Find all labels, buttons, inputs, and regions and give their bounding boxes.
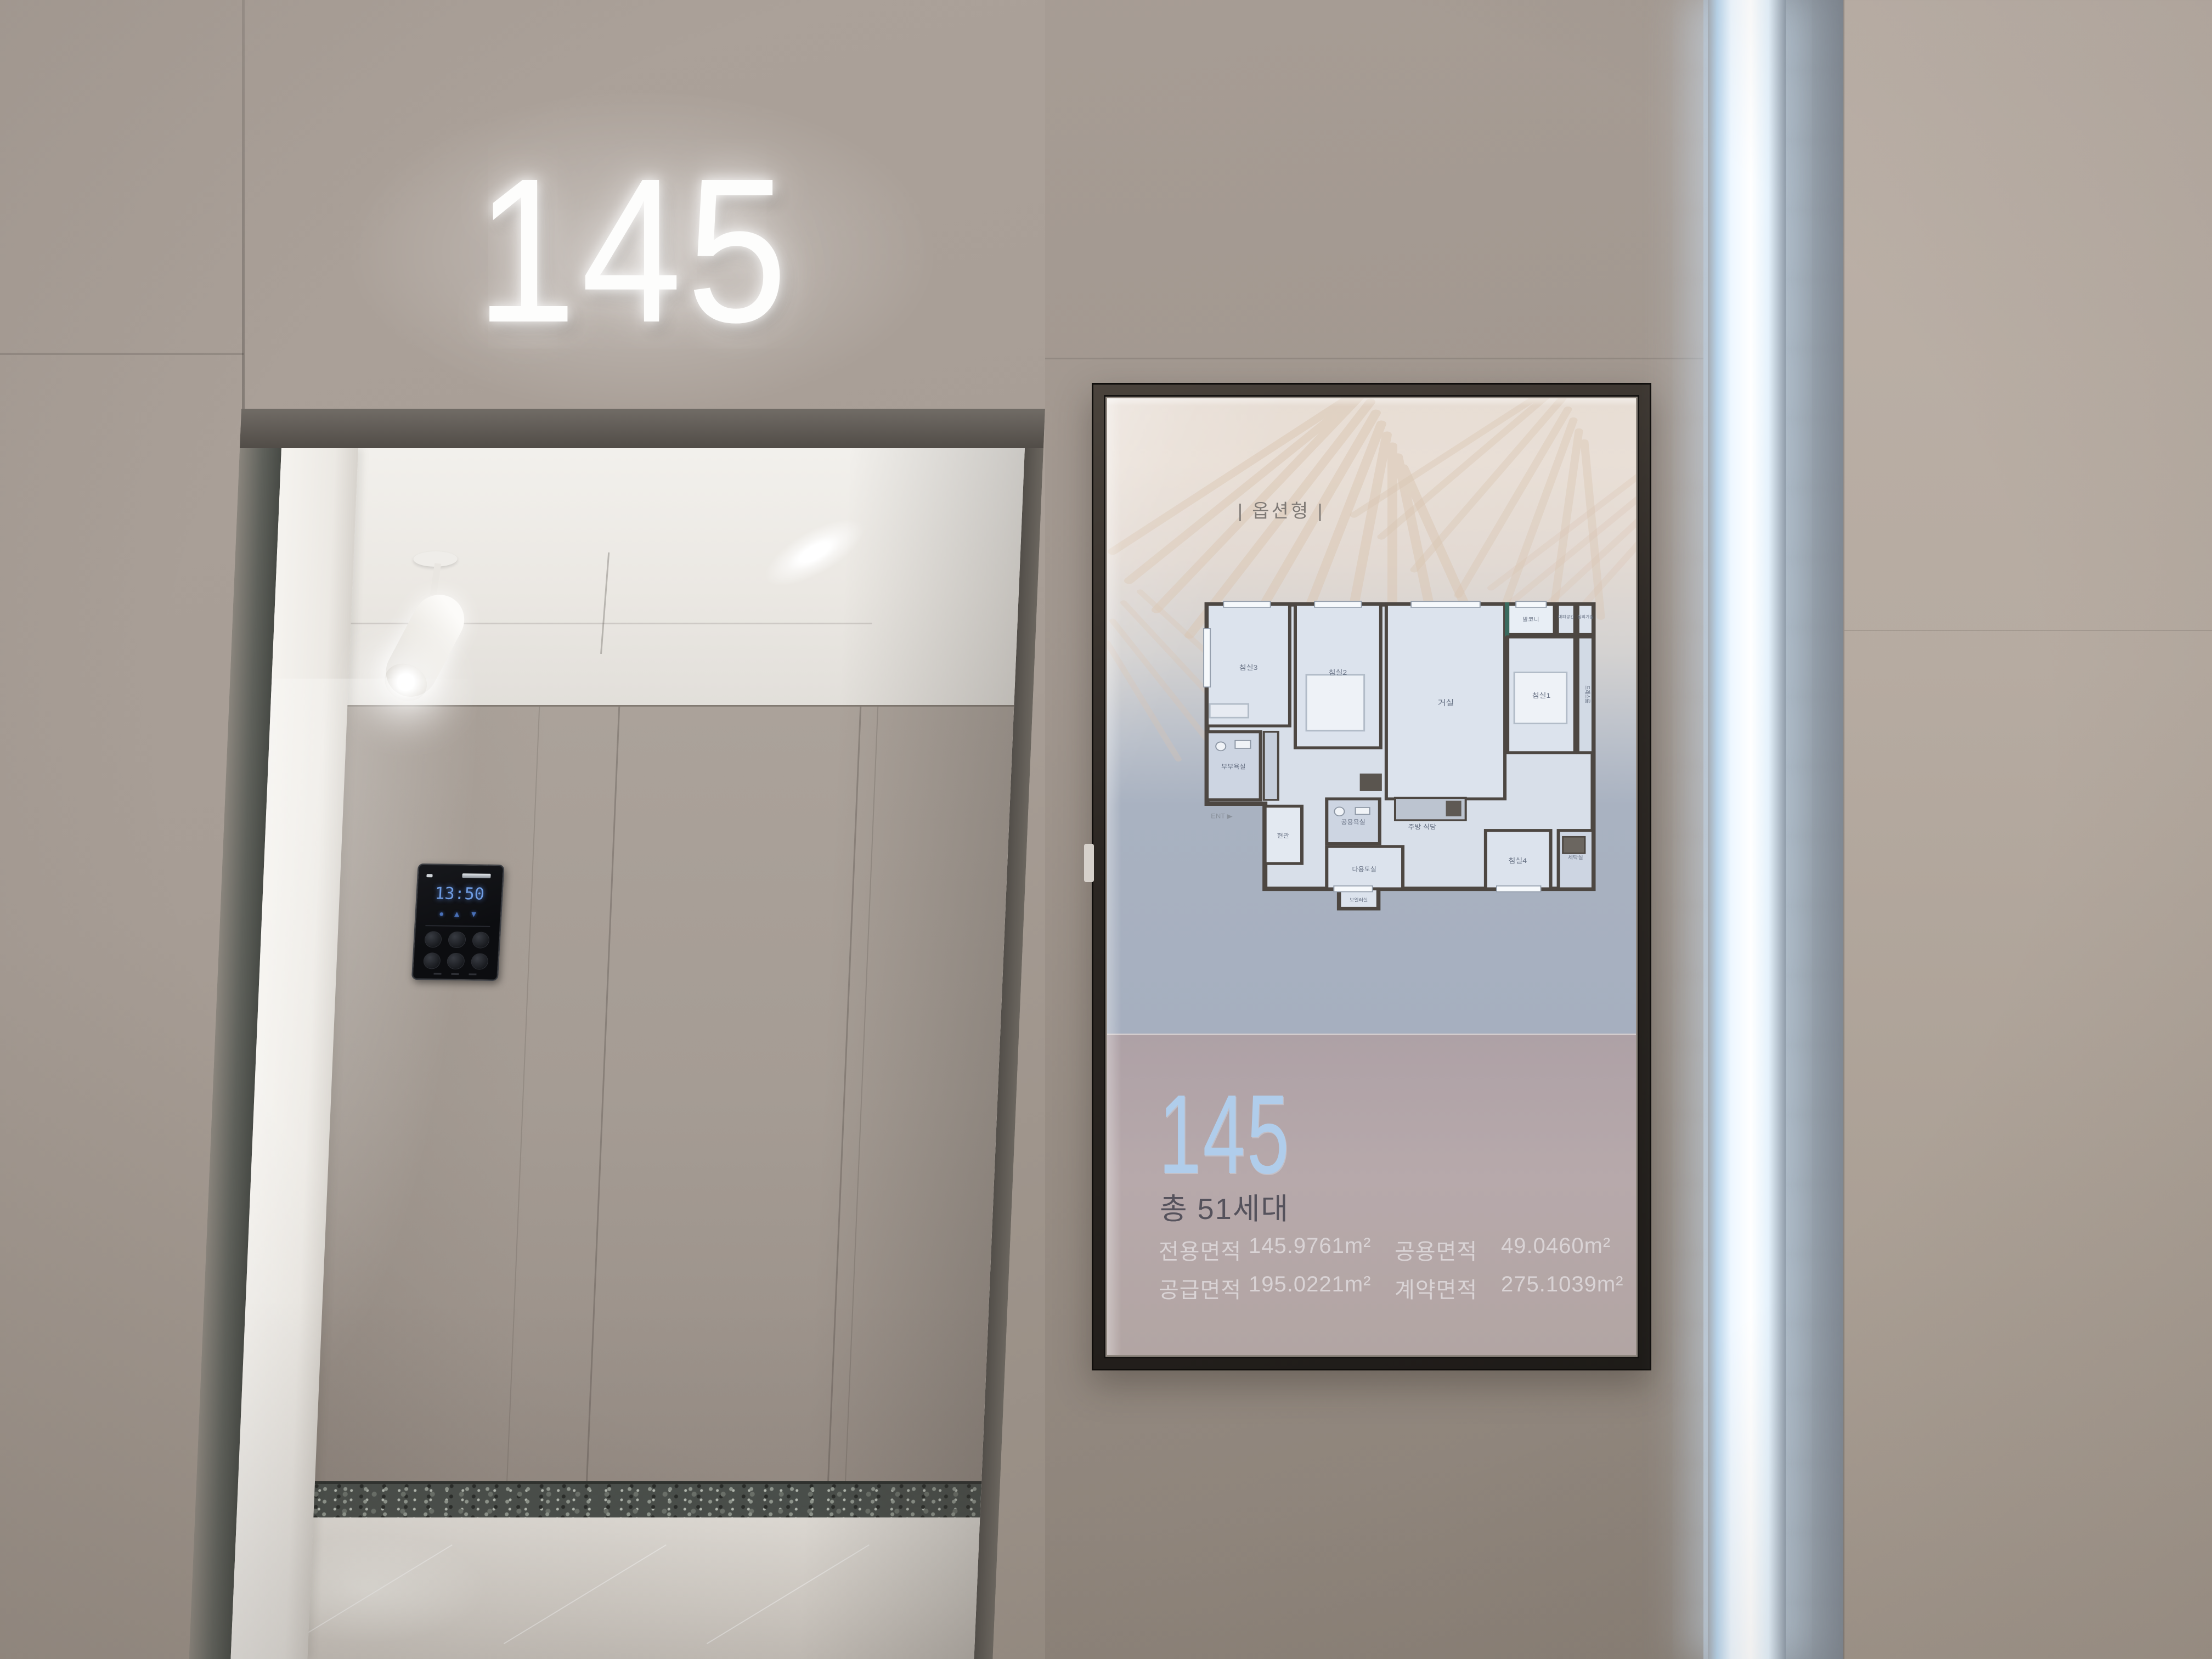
digital-signage-display: | 옵션형 |: [1092, 383, 1651, 1370]
elevator-call-panel: 13:50 ● ▲ ▼: [411, 864, 505, 981]
signage-info-section: 145 총 51세대 전용면적 145.9761m² 공용면적 49.0460m…: [1107, 1034, 1636, 1355]
entrance-marker: ENT ▶: [1211, 812, 1233, 820]
floor-plan: 침실3 침실2 거실 발코니 대피공간 실외기실 침실1 드레스룸 부부욕실 현…: [1199, 590, 1596, 911]
down-arrow-icon: ▼: [470, 910, 478, 919]
model-house-elevator-hall-photo: 145: [0, 0, 2212, 1659]
panel-indicator: [427, 874, 433, 877]
area-label-contract: 계약면적: [1395, 1272, 1477, 1304]
keypad-button: [448, 931, 466, 947]
room-label-living: 거실: [1438, 699, 1454, 708]
room-label-bedroom2: 침실2: [1329, 669, 1347, 676]
hanging-wire: [600, 552, 610, 654]
interior-shadow: [230, 1296, 989, 1659]
area-value-common: 49.0460m²: [1501, 1234, 1611, 1259]
room-label-common-bath: 공용욕실: [1341, 819, 1365, 826]
panel-marks: [413, 973, 497, 975]
up-arrow-icon: ▲: [453, 910, 461, 919]
right-wall: [1843, 0, 2212, 1659]
room-label-bedroom4: 침실4: [1508, 857, 1527, 865]
call-panel-keypad: [423, 931, 489, 970]
area-value-exclusive: 145.9761m²: [1249, 1234, 1371, 1259]
area-value-supply: 195.0221m²: [1249, 1272, 1371, 1297]
keypad-button: [447, 952, 465, 969]
room-label-kitchen-dining: 주방 식당: [1408, 823, 1436, 831]
call-panel-display: 13:50: [417, 884, 503, 904]
wall-seam: [1844, 630, 2212, 631]
room-label-laundry: 세탁실: [1568, 855, 1583, 861]
room-label-balcony: 발코니: [1522, 617, 1539, 623]
status-dot-icon: ●: [439, 910, 444, 919]
households-count: 총 51세대: [1160, 1184, 1289, 1228]
display-side-button: [1084, 844, 1094, 882]
room-label-master-bath: 부부욕실: [1221, 764, 1245, 770]
area-label-common: 공용면적: [1395, 1234, 1477, 1266]
room-label-utility: 다용도실: [1352, 866, 1376, 873]
keypad-button: [472, 932, 490, 948]
led-light-column: [1703, 0, 1843, 1659]
room-label-bedroom1: 침실1: [1532, 692, 1551, 699]
area-label-supply: 공급면적: [1159, 1272, 1242, 1304]
room-label-refuge: 대피공간: [1558, 614, 1575, 619]
room-label-boiler: 보일러실: [1350, 898, 1368, 902]
wall-seam: [242, 0, 245, 410]
signage-floorplan-section: | 옵션형 |: [1107, 398, 1636, 1034]
elevator-lobby-doorway: 13:50 ● ▲ ▼: [189, 409, 1045, 1659]
led-light-strip: [1708, 0, 1786, 1659]
door-frame-header: [240, 409, 1045, 448]
call-panel-icons: ● ▲ ▼: [416, 909, 501, 919]
room-label-bedroom3: 침실3: [1239, 664, 1258, 672]
unit-number: 145: [1159, 1078, 1291, 1190]
panel-divider: [426, 925, 490, 927]
panel-light-strip: [462, 873, 491, 878]
room-label-entry: 현관: [1277, 833, 1290, 839]
room-label-dressroom: 드레스룸: [1584, 685, 1590, 703]
signage-screen: | 옵션형 |: [1107, 398, 1636, 1355]
room-label-outdoor-unit: 실외기실: [1577, 614, 1594, 619]
area-label-exclusive: 전용면적: [1159, 1234, 1242, 1266]
unit-number-wall-sign: 145: [476, 160, 789, 347]
area-value-contract: 275.1039m²: [1501, 1272, 1623, 1297]
wall-seam: [0, 353, 244, 355]
keypad-button: [423, 952, 441, 969]
option-type-header: | 옵션형 |: [1238, 496, 1324, 523]
keypad-button: [470, 953, 488, 969]
elevator-lobby-interior: 13:50 ● ▲ ▼: [230, 448, 1025, 1659]
keypad-button: [425, 931, 443, 947]
